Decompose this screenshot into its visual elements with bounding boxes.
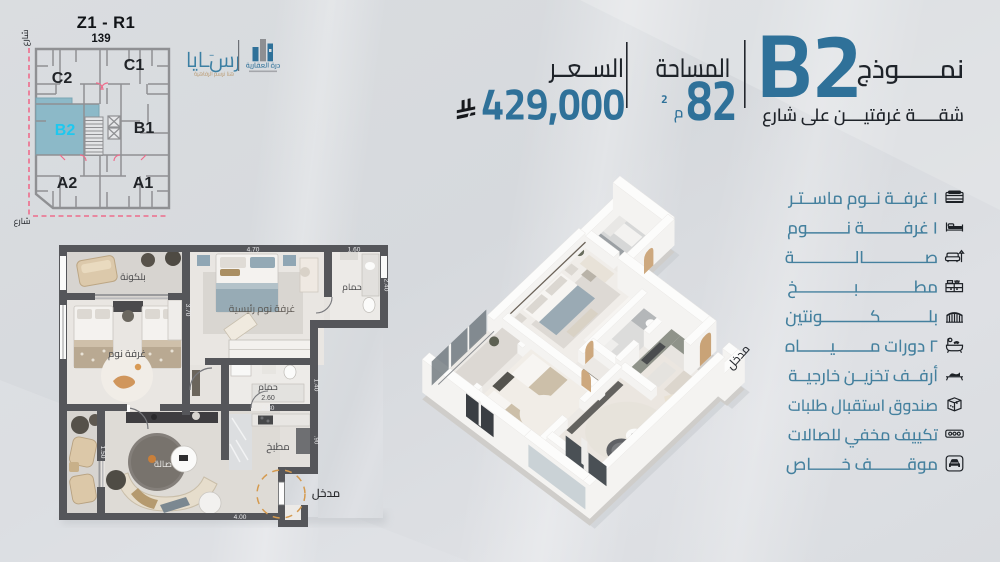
svg-text:A2: A2	[57, 175, 78, 192]
svg-text:139: 139	[91, 33, 110, 45]
svg-text:.90: .90	[313, 436, 319, 445]
svg-text:A1: A1	[133, 175, 154, 192]
svg-text:3.70: 3.70	[184, 304, 191, 317]
svg-text:Z1 - R1: Z1 - R1	[77, 14, 136, 32]
svg-text:2.40: 2.40	[383, 279, 390, 292]
svg-text:2.80: 2.80	[262, 405, 275, 412]
svg-text:C1: C1	[124, 57, 145, 74]
svg-text:4.00: 4.00	[234, 514, 247, 521]
svg-text:B1: B1	[134, 120, 155, 137]
svg-text:2.60: 2.60	[261, 395, 275, 402]
svg-text:B2: B2	[55, 122, 76, 139]
svg-text:1.40: 1.40	[313, 379, 320, 392]
svg-text:1.50: 1.50	[99, 446, 106, 459]
svg-text:4.70: 4.70	[247, 247, 260, 254]
svg-text:1.60: 1.60	[348, 247, 361, 254]
svg-text:C2: C2	[52, 70, 73, 87]
